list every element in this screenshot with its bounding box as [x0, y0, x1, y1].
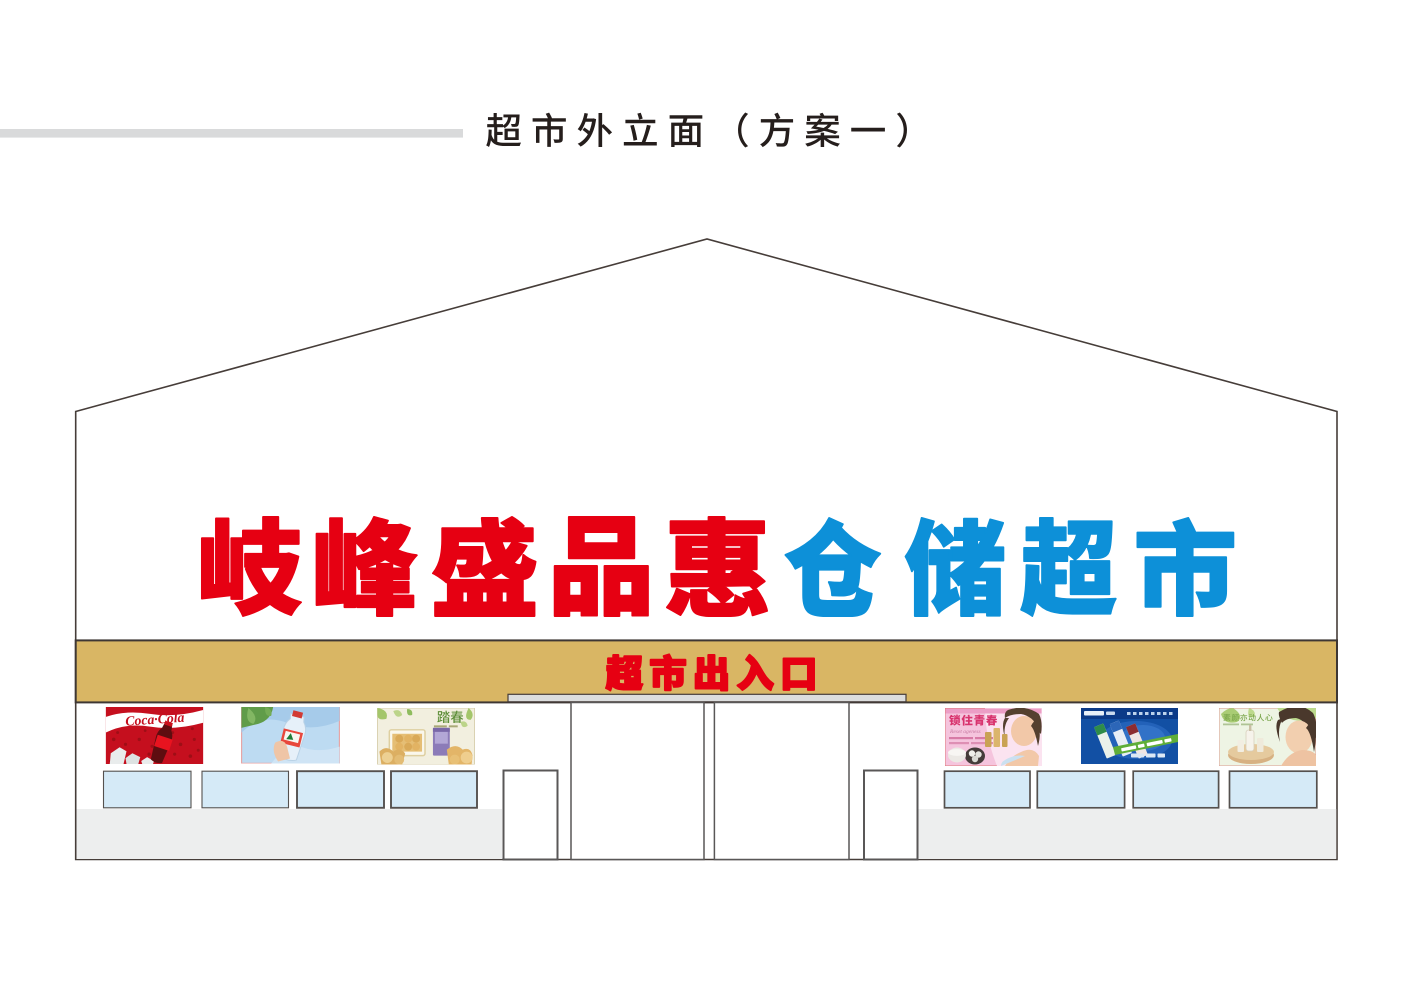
svg-text:Reset ageness: Reset ageness	[949, 729, 981, 735]
